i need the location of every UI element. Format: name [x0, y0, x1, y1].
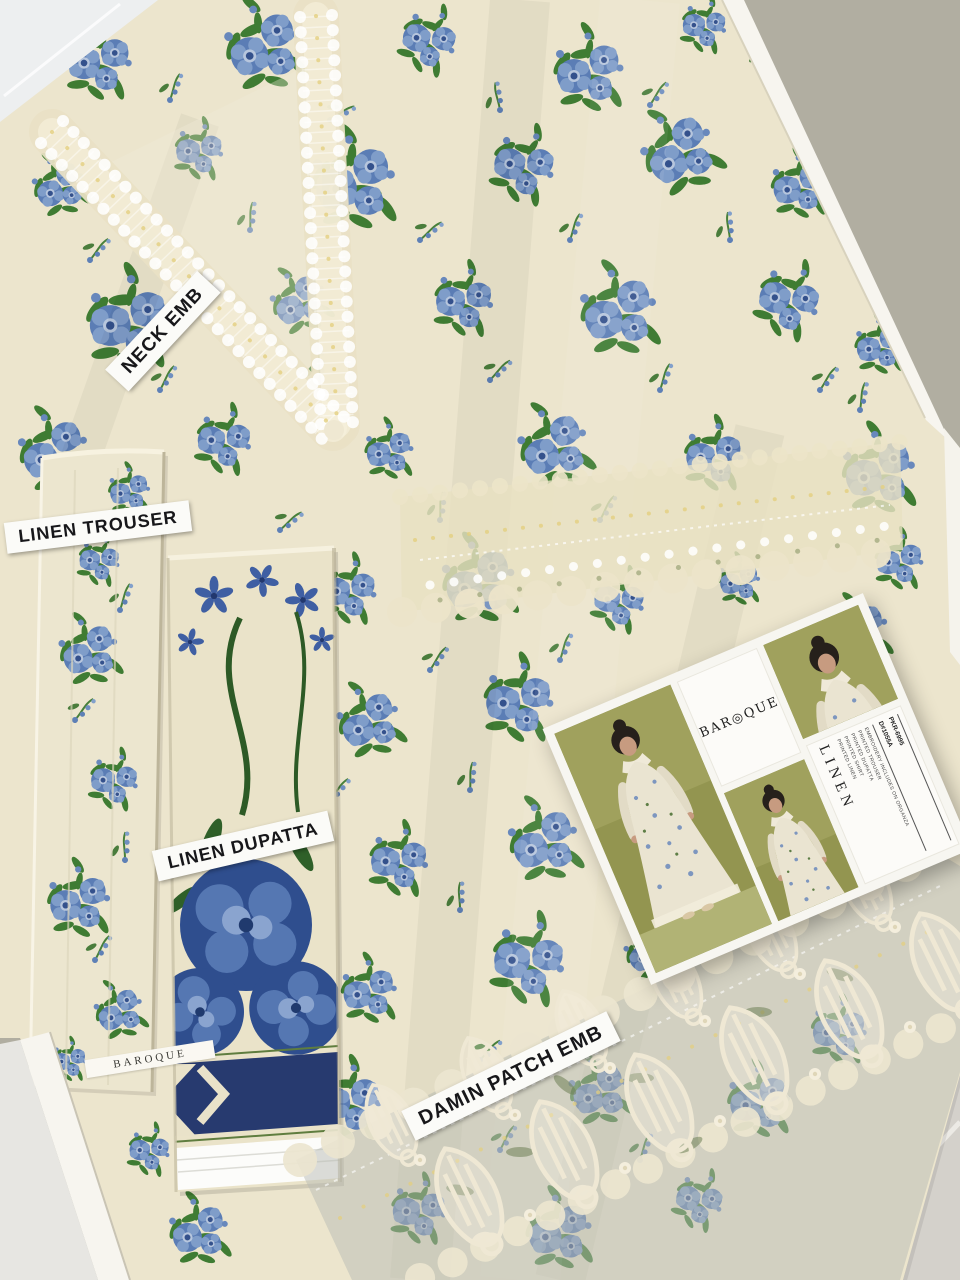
flatlay-photo: NECK EMB LINEN TROUSER LINEN DUPATTA DAM… [0, 0, 960, 1280]
brand-logo-text: BAR◎QUE [697, 694, 781, 741]
